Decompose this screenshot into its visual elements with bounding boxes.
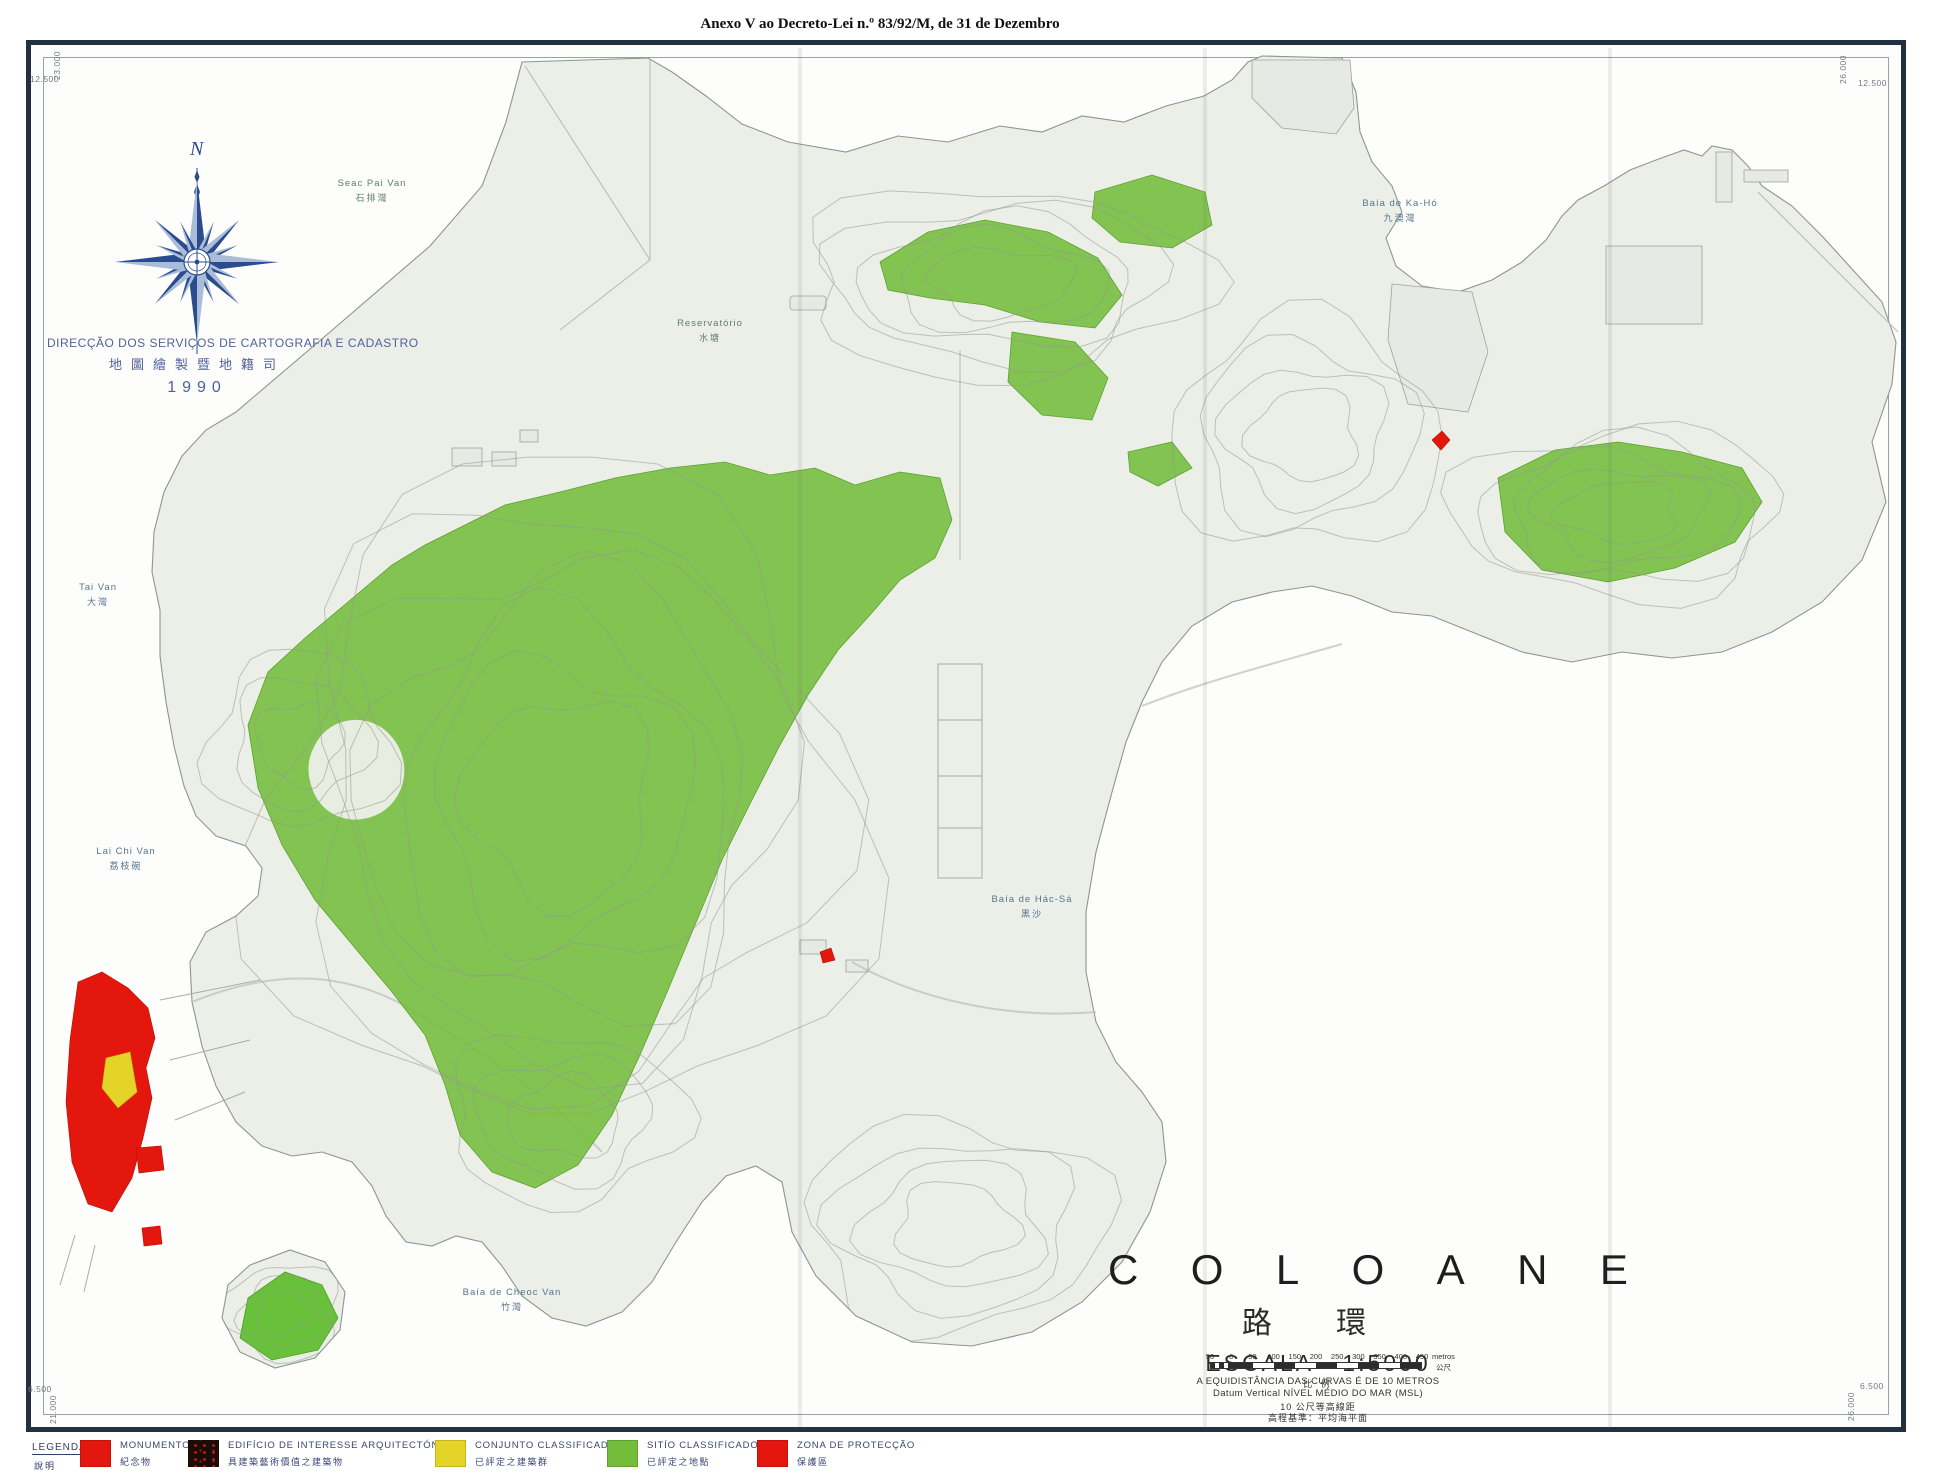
scale-tick: 100 (1267, 1352, 1280, 1361)
legend-title: LEGENDA 說明 (32, 1442, 87, 1472)
legend-item-monumento: MONUMENTO紀念物 (80, 1440, 190, 1468)
grid-coord-top-right-y: 26.000 (1838, 54, 1848, 84)
grid-coord-top-left-x: 12.500 (30, 74, 59, 84)
zona-swatch (757, 1440, 788, 1467)
legend-item-conjunto: CONJUNTO CLASSIFICADO已評定之建築群 (435, 1440, 617, 1468)
place-label-baia-de-ka-ho: Baía de Ka-Hó九澳灣 (1362, 198, 1437, 224)
scale-tick: 300 (1352, 1352, 1365, 1361)
scale-unit-pt: metros (1432, 1352, 1455, 1361)
grid-coord-top-right-x: 12.500 (1858, 78, 1887, 88)
monumento-swatch (80, 1440, 111, 1467)
place-label-reservatorio: Reservatório水塘 (677, 318, 743, 344)
scale-tick: 200 (1310, 1352, 1323, 1361)
scale-tick: 350 (1373, 1352, 1386, 1361)
place-label-baia-de-hac-sa: Baía de Hác-Sá黑沙 (991, 894, 1072, 920)
grid-coord-bottom-right-x: 6.500 (1860, 1381, 1884, 1391)
agency-block: DIRECÇÃO DOS SERVIÇOS DE CARTOGRAFIA E C… (47, 336, 347, 397)
equidistance-note: A EQUIDISTÂNCIA DAS CURVAS É DE 10 METRO… (1108, 1376, 1528, 1387)
map-title-zh: 路 環 (1108, 1298, 1528, 1342)
scale-bar-segments (1210, 1362, 1422, 1369)
compass-north-label: N (190, 138, 203, 161)
place-label-seac-pai-van: Seac Pai Van石排灣 (338, 178, 407, 204)
scale-tick: 450 (1416, 1352, 1429, 1361)
legend-item-zona: ZONA DE PROTECÇÃO保護區 (757, 1440, 915, 1468)
legend-item-sitio: SITÍO CLASSIFICADO已評定之地點 (607, 1440, 759, 1468)
scale-unit-zh: 公尺 (1436, 1362, 1451, 1373)
grid-coord-bottom-left-y: 21.000 (48, 1394, 58, 1424)
scale-bar-ticks: 50050100150200250300350400450 (1210, 1352, 1422, 1361)
conjunto-swatch (435, 1440, 466, 1467)
datum-note-zh: 高程基準：平均海平面 (1108, 1411, 1528, 1424)
agency-name-pt: DIRECÇÃO DOS SERVIÇOS DE CARTOGRAFIA E C… (47, 336, 347, 350)
scale-tick: 400 (1395, 1352, 1408, 1361)
agency-name-zh: 地圖繪製暨地籍司 (47, 354, 347, 373)
grid-coord-bottom-left-x: 6.500 (28, 1384, 52, 1394)
scale-tick: 0 (1229, 1352, 1233, 1361)
scale-tick: 150 (1289, 1352, 1302, 1361)
map-title: C O L O A N E (1108, 1246, 1528, 1294)
edificio-swatch (188, 1440, 219, 1467)
scale-tick: 50 (1206, 1352, 1214, 1361)
scale-tick: 250 (1331, 1352, 1344, 1361)
place-label-lai-chi-van: Lai Chi Van荔枝碗 (96, 846, 155, 872)
agency-year: 1990 (47, 379, 347, 397)
place-label-tai-van: Tai Van大灣 (79, 582, 117, 608)
map-sheet: Anexo V ao Decreto-Lei n.º 83/92/M, de 3… (0, 0, 1940, 1479)
legend-item-edificio: EDIFÍCIO DE INTERESSE ARQUITECTÓNICO具建築藝… (188, 1440, 458, 1468)
place-label-baia-de-cheoc-van: Baía de Cheoc Van竹灣 (463, 1287, 562, 1313)
datum-note: Datum Vertical NÍVEL MÉDIO DO MAR (MSL) (1108, 1388, 1528, 1399)
scale-bar: 50050100150200250300350400450 (1210, 1352, 1422, 1369)
sitio-swatch (607, 1440, 638, 1467)
compass-rose (115, 168, 279, 354)
grid-coord-bottom-right-y: 26.000 (1846, 1391, 1856, 1421)
scale-tick: 50 (1248, 1352, 1256, 1361)
